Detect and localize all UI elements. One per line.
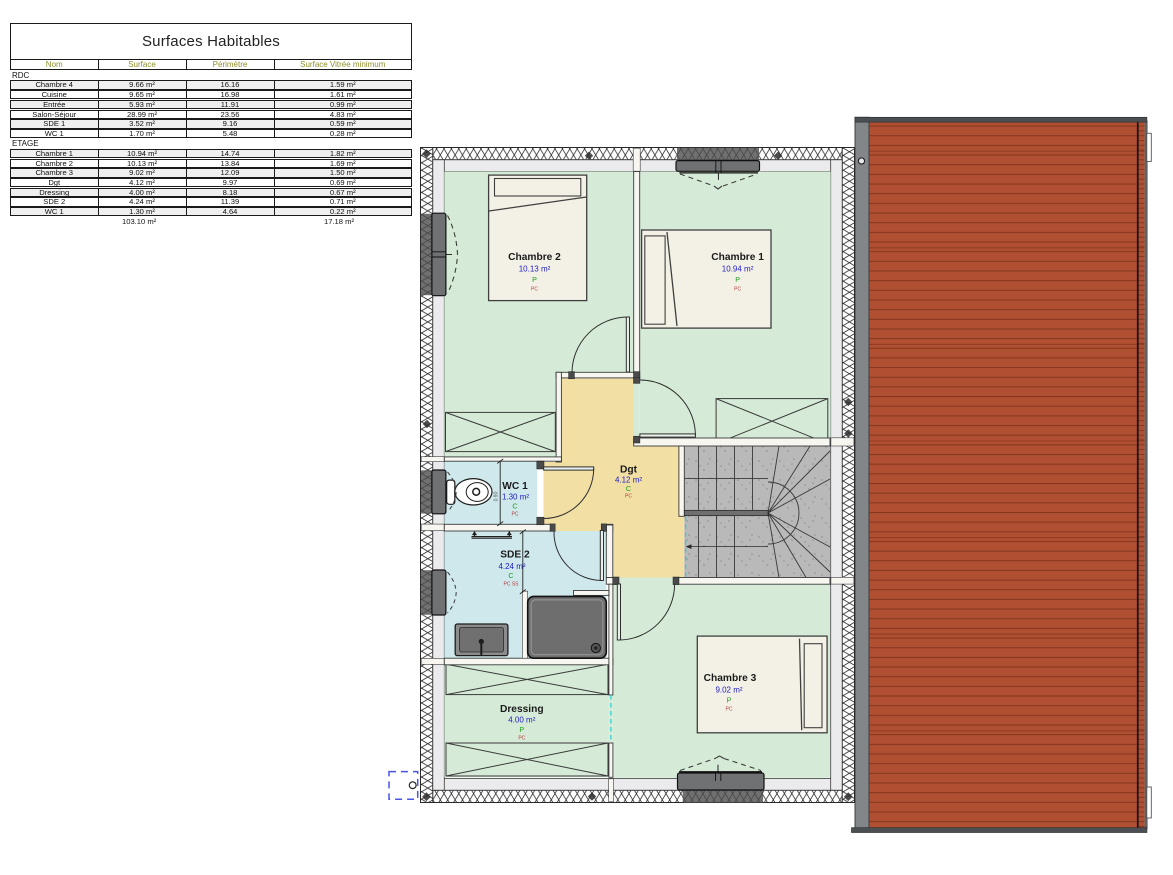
- svg-text:Dressing: Dressing: [500, 704, 544, 715]
- svg-text:WC 1: WC 1: [502, 481, 528, 492]
- svg-text:P: P: [519, 725, 524, 734]
- svg-text:0.90: 0.90: [494, 491, 500, 501]
- svg-text:SDE 2: SDE 2: [500, 550, 530, 561]
- svg-text:PC: PC: [734, 287, 741, 293]
- svg-text:Dgt: Dgt: [620, 465, 638, 476]
- svg-text:Chambre 3: Chambre 3: [704, 673, 757, 684]
- svg-text:PC SS: PC SS: [503, 582, 519, 588]
- svg-text:PC: PC: [726, 707, 733, 713]
- svg-text:P: P: [727, 696, 732, 705]
- svg-text:9.02 m²: 9.02 m²: [715, 686, 742, 695]
- svg-text:C: C: [626, 484, 631, 493]
- svg-text:4.24 m²: 4.24 m²: [498, 562, 525, 571]
- svg-text:PC: PC: [531, 287, 538, 293]
- svg-text:1.30 m²: 1.30 m²: [502, 493, 529, 502]
- svg-text:PC: PC: [512, 512, 519, 518]
- svg-text:C: C: [512, 502, 517, 511]
- svg-text:PC: PC: [625, 494, 632, 500]
- svg-text:10.94 m²: 10.94 m²: [722, 265, 754, 274]
- svg-text:Chambre 1: Chambre 1: [711, 252, 764, 263]
- svg-text:C: C: [508, 571, 513, 580]
- svg-text:PC: PC: [518, 736, 525, 742]
- svg-text:P: P: [735, 275, 740, 284]
- svg-text:Chambre 2: Chambre 2: [508, 252, 561, 263]
- svg-text:10.13 m²: 10.13 m²: [519, 265, 551, 274]
- svg-text:4.00 m²: 4.00 m²: [508, 716, 535, 725]
- svg-text:P: P: [532, 275, 537, 284]
